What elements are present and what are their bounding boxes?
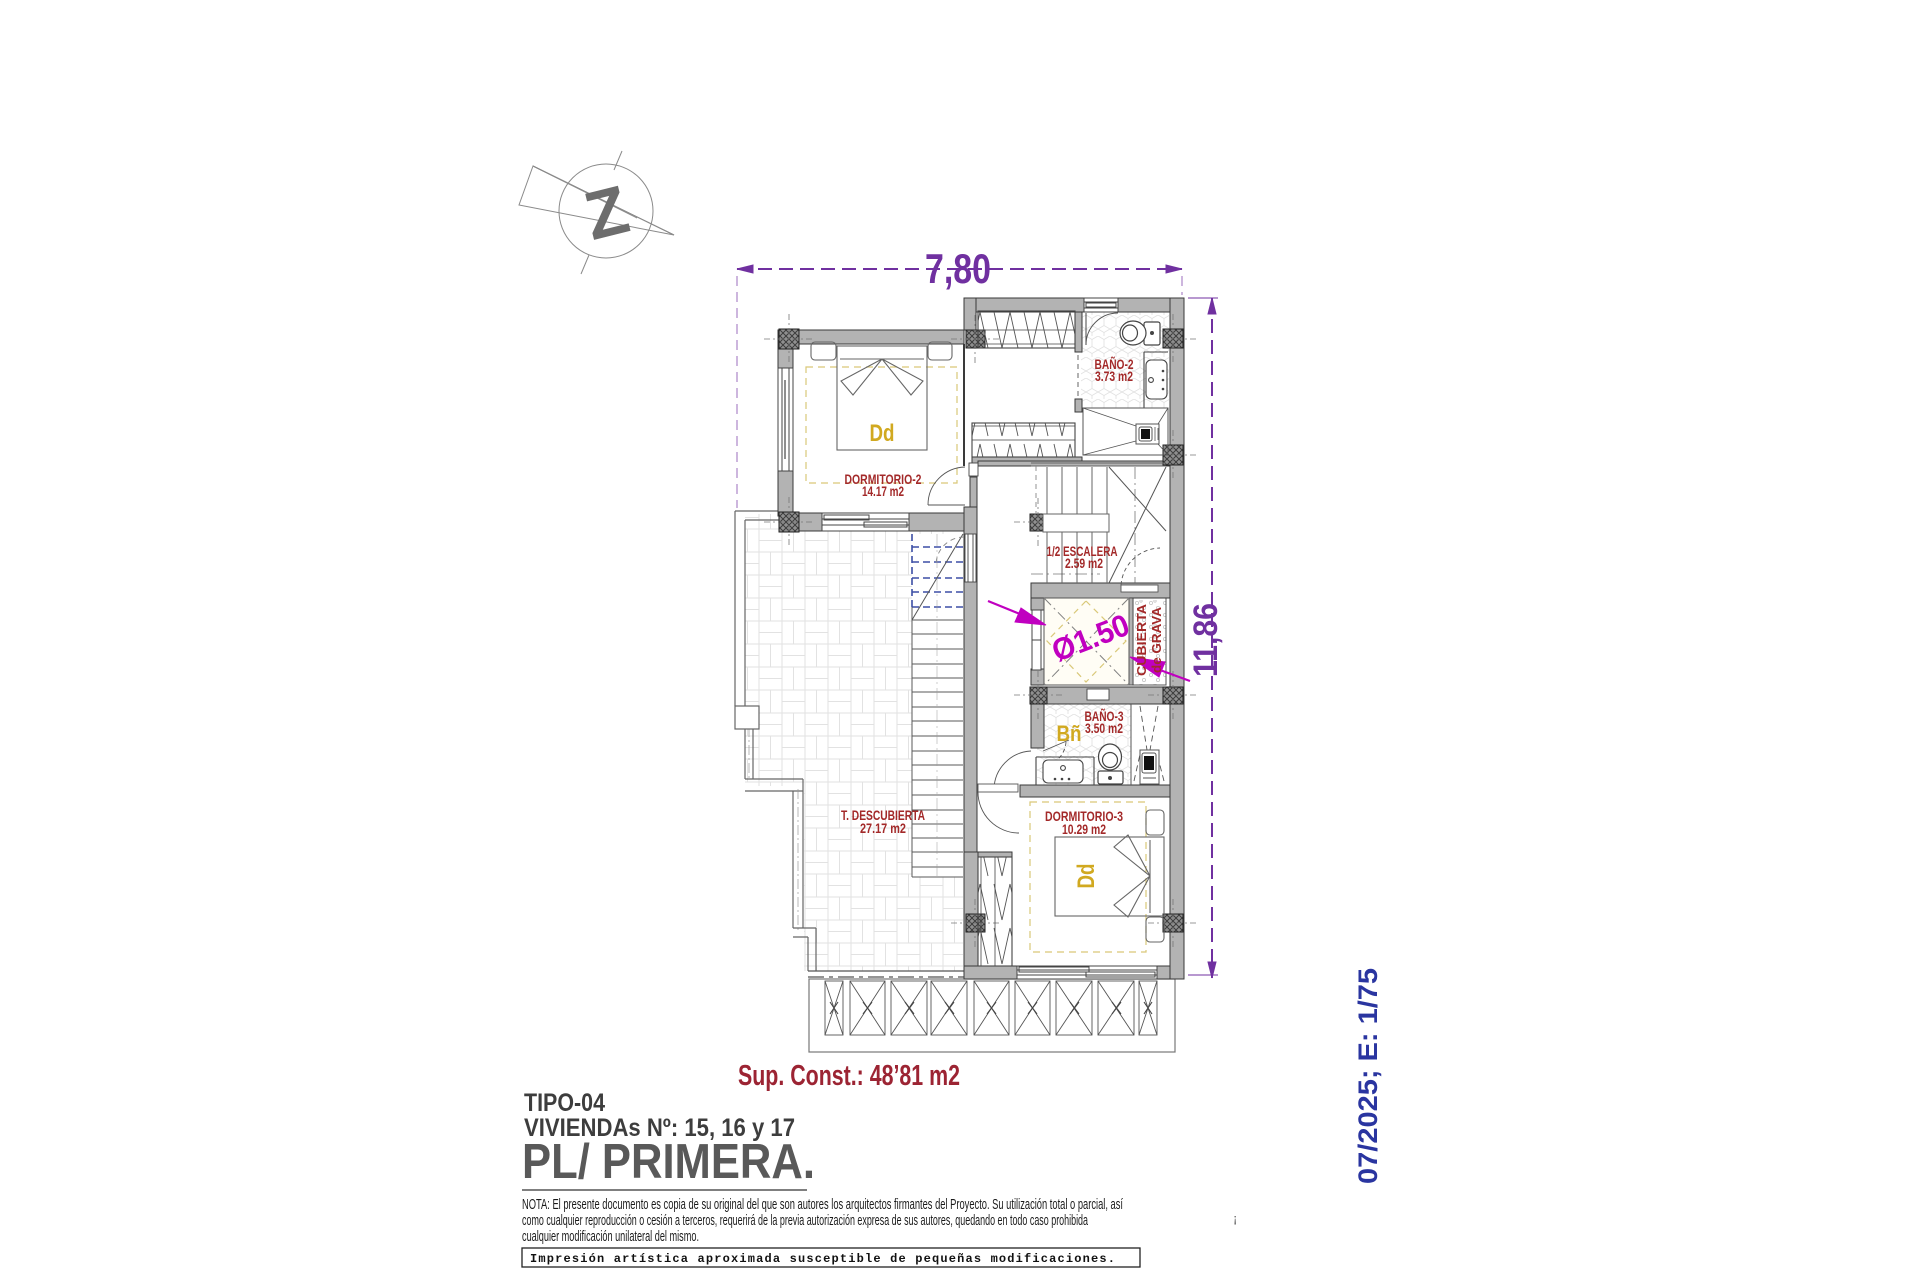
- svg-text:Bñ: Bñ: [1057, 721, 1082, 746]
- svg-text:TIPO-04: TIPO-04: [524, 1089, 605, 1117]
- svg-text:10.29 m2: 10.29 m2: [1062, 821, 1106, 837]
- svg-text:3.50 m2: 3.50 m2: [1085, 720, 1123, 736]
- svg-text:cualquier modificación unilate: cualquier modificación unilateral del mi…: [522, 1229, 699, 1245]
- svg-text:7,80: 7,80: [925, 245, 991, 292]
- svg-text:14.17 m2: 14.17 m2: [862, 483, 904, 499]
- svg-text:11,86: 11,86: [1187, 603, 1225, 677]
- svg-text:3.73 m2: 3.73 m2: [1095, 368, 1133, 384]
- svg-text:07/2025; E: 1/75: 07/2025; E: 1/75: [1353, 968, 1383, 1184]
- svg-text:Impresión artística aproxima: Impresión artística aproximada susceptib…: [530, 1252, 1115, 1266]
- svg-text:NOTA: El presente documento es: NOTA: El presente documento es copia de …: [522, 1197, 1123, 1213]
- svg-text:PL/ PRIMERA.: PL/ PRIMERA.: [522, 1135, 815, 1189]
- svg-text:Dd: Dd: [870, 420, 895, 447]
- svg-text:de GRAVA: de GRAVA: [1149, 606, 1164, 673]
- svg-text:como cualquier reproducción o: como cualquier reproducción o cesión a t…: [522, 1213, 1089, 1229]
- svg-text:27.17 m2: 27.17 m2: [860, 820, 906, 836]
- svg-text:¡: ¡: [1233, 1210, 1237, 1225]
- svg-text:CUBIERTA: CUBIERTA: [1134, 603, 1149, 676]
- svg-text:2.59 m2: 2.59 m2: [1065, 555, 1103, 571]
- svg-text:Dd: Dd: [1073, 864, 1100, 889]
- svg-text:Sup. Const.: 48’81 m2: Sup. Const.: 48’81 m2: [738, 1060, 960, 1092]
